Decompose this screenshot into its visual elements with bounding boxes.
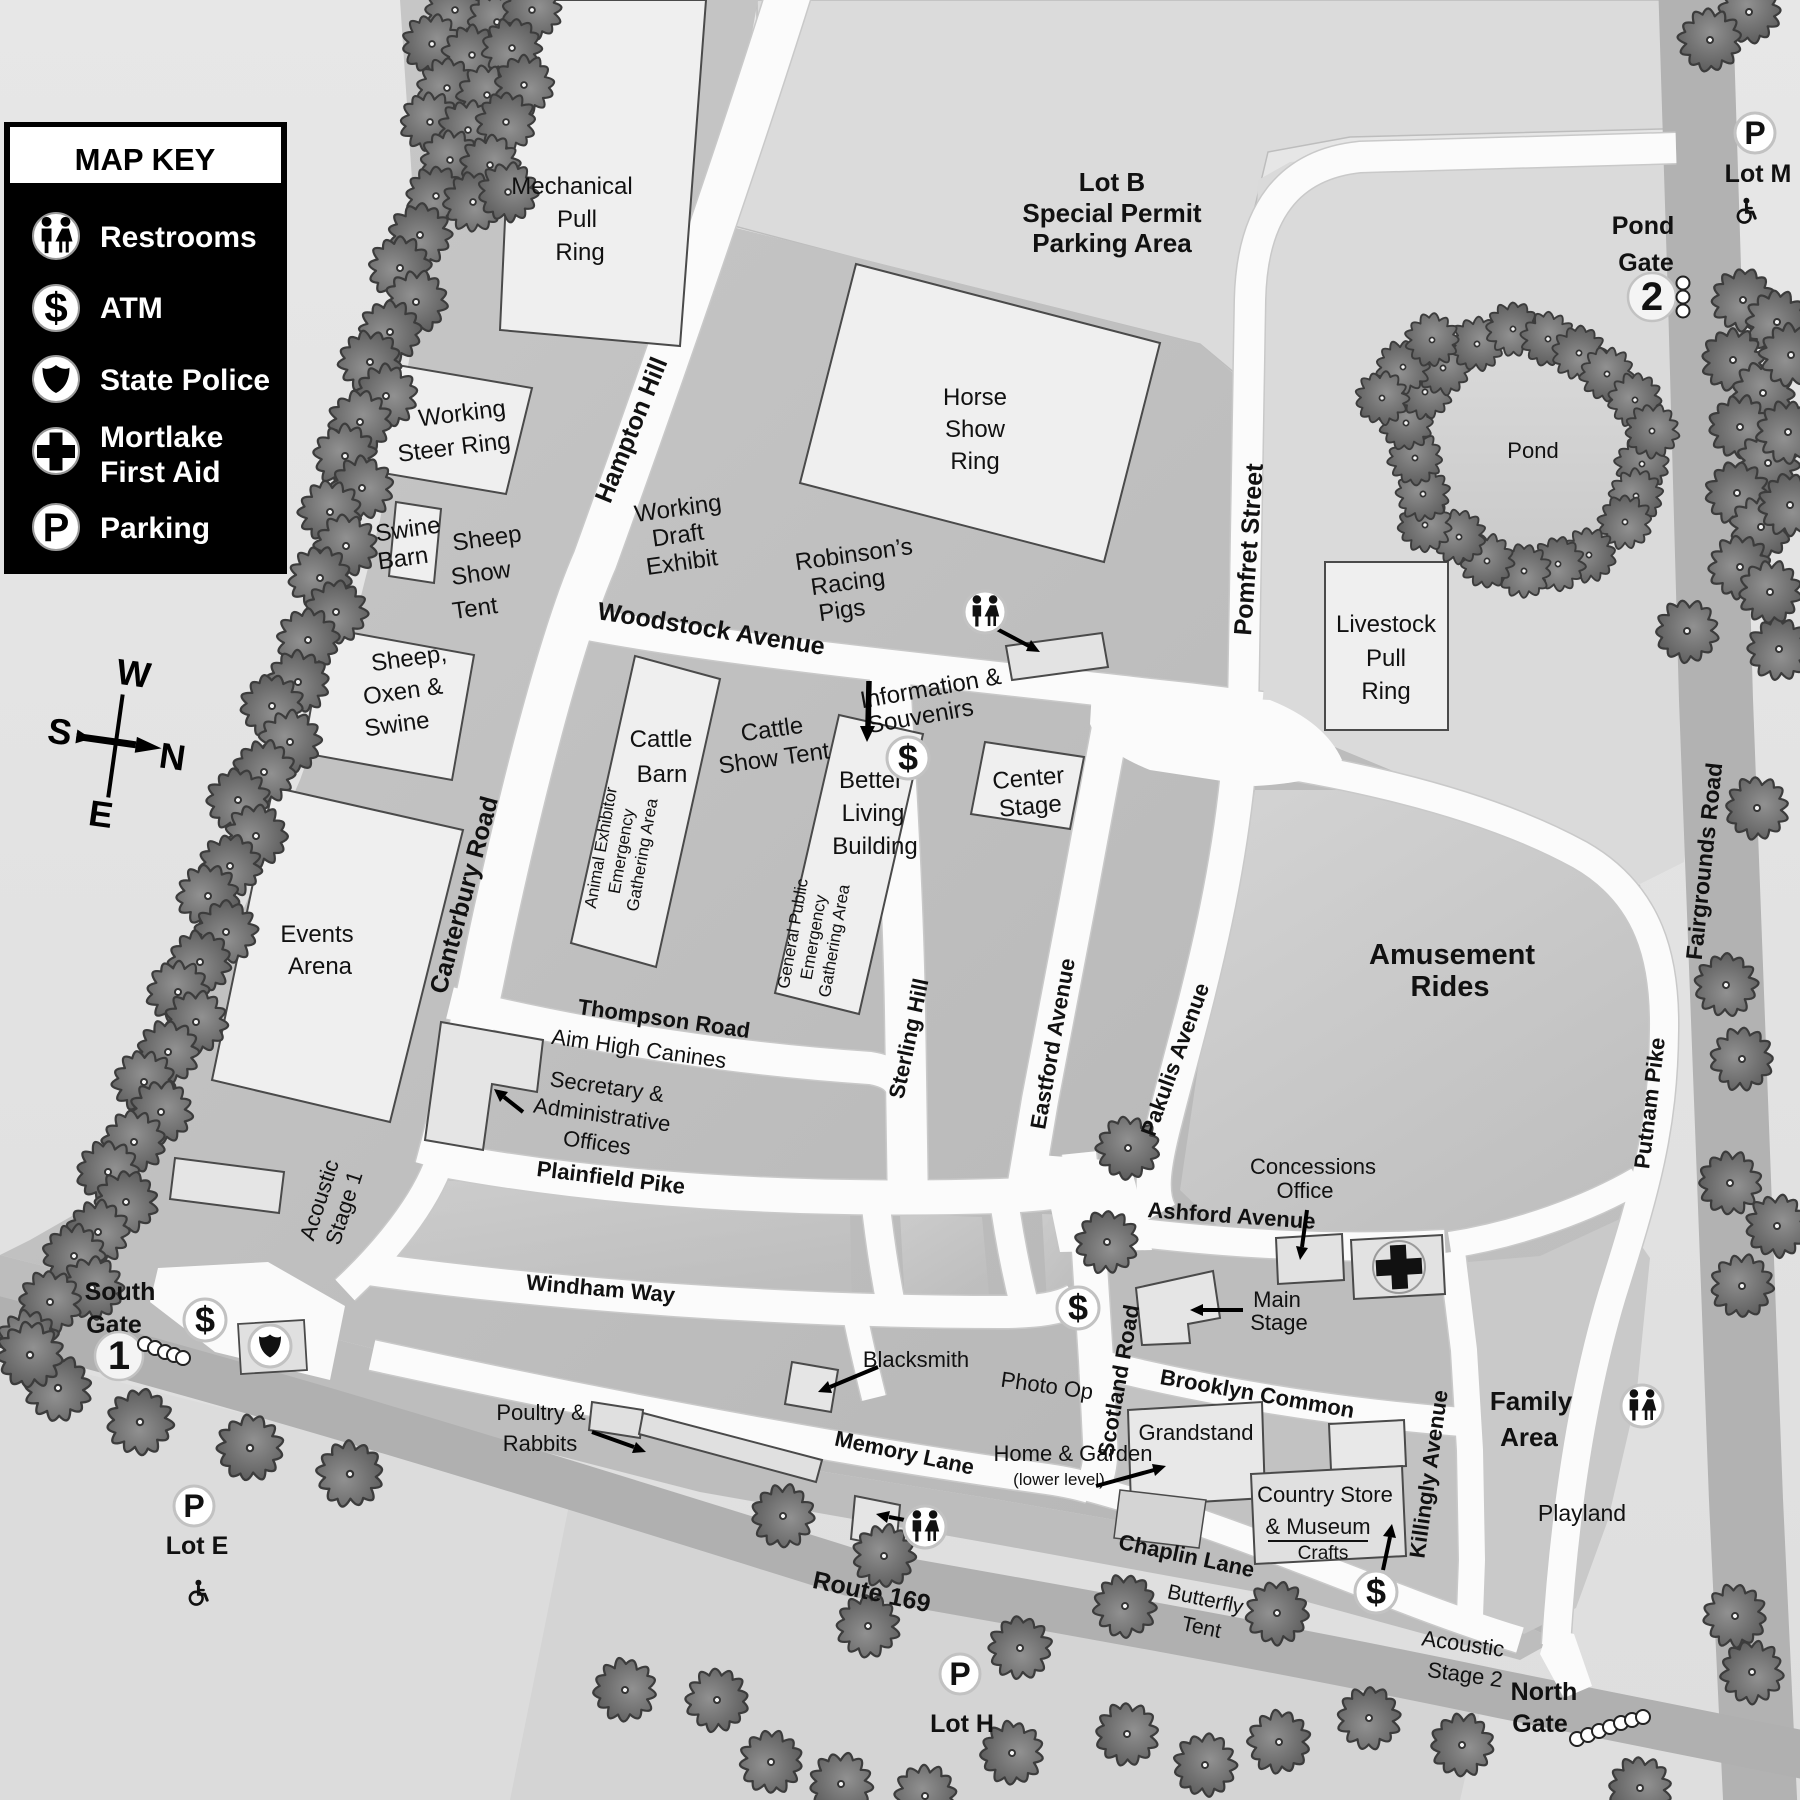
svg-text:2: 2 [1641, 275, 1663, 319]
svg-text:(lower level): (lower level) [1013, 1470, 1105, 1489]
svg-text:Mechanical: Mechanical [511, 173, 632, 200]
svg-text:Mortlake: Mortlake [100, 421, 223, 454]
svg-text:Poultry &: Poultry & [496, 1400, 586, 1425]
svg-text:P: P [1744, 115, 1765, 151]
svg-text:Crafts: Crafts [1298, 1543, 1349, 1564]
svg-text:$: $ [898, 737, 918, 778]
svg-text:Stage: Stage [998, 790, 1063, 822]
svg-text:W: W [114, 651, 153, 696]
svg-text:Ring: Ring [555, 239, 604, 266]
svg-text:Lot H: Lot H [930, 1710, 994, 1738]
svg-text:Ring: Ring [1361, 678, 1410, 705]
svg-text:Special Permit: Special Permit [1022, 198, 1202, 228]
svg-text:Playland: Playland [1538, 1500, 1626, 1526]
svg-text:Pull: Pull [1366, 645, 1406, 672]
svg-text:& Museum: & Museum [1265, 1514, 1370, 1539]
svg-text:MAP KEY: MAP KEY [75, 142, 216, 177]
svg-text:Amusement: Amusement [1369, 939, 1535, 971]
svg-text:Cattle: Cattle [630, 726, 693, 753]
svg-text:Parking Area: Parking Area [1032, 228, 1192, 258]
svg-text:$: $ [1366, 1571, 1386, 1612]
svg-text:South: South [85, 1278, 156, 1306]
svg-text:Lot E: Lot E [166, 1532, 229, 1560]
svg-text:Home & Garden: Home & Garden [994, 1441, 1153, 1466]
svg-text:$: $ [44, 284, 67, 331]
svg-text:Living: Living [842, 800, 905, 827]
svg-text:Lot B: Lot B [1079, 167, 1145, 197]
svg-text:Barn: Barn [637, 761, 688, 788]
svg-text:Pull: Pull [557, 206, 597, 233]
svg-text:Building: Building [832, 833, 917, 860]
svg-text:Country Store: Country Store [1257, 1482, 1393, 1507]
svg-text:Pond: Pond [1507, 438, 1558, 463]
svg-text:Stage: Stage [1250, 1310, 1308, 1335]
svg-text:Rides: Rides [1411, 971, 1490, 1003]
svg-text:Blacksmith: Blacksmith [863, 1347, 969, 1372]
svg-text:P: P [43, 506, 70, 550]
svg-text:Restrooms: Restrooms [100, 221, 257, 254]
svg-text:P: P [183, 1488, 204, 1524]
svg-text:Livestock: Livestock [1336, 611, 1437, 638]
svg-text:Ring: Ring [950, 448, 999, 475]
svg-text:Horse: Horse [943, 384, 1007, 411]
svg-text:$: $ [1068, 1287, 1088, 1328]
svg-text:First Aid: First Aid [100, 456, 221, 489]
svg-text:State Police: State Police [100, 364, 270, 397]
svg-text:Main: Main [1253, 1287, 1301, 1312]
svg-text:Events: Events [280, 921, 353, 948]
svg-text:Grandstand: Grandstand [1139, 1420, 1254, 1445]
svg-text:1: 1 [108, 1334, 130, 1378]
svg-text:Family: Family [1490, 1386, 1573, 1416]
svg-text:Concessions: Concessions [1250, 1154, 1376, 1179]
svg-text:Arena: Arena [288, 953, 353, 980]
svg-text:Rabbits: Rabbits [503, 1431, 578, 1456]
svg-text:$: $ [195, 1299, 215, 1340]
svg-text:North: North [1511, 1678, 1578, 1706]
svg-text:ATM: ATM [100, 292, 163, 325]
svg-text:Parking: Parking [100, 512, 210, 545]
svg-text:Pond: Pond [1612, 212, 1675, 240]
svg-text:Office: Office [1276, 1178, 1333, 1203]
svg-text:P: P [949, 1656, 970, 1692]
svg-text:Show: Show [945, 416, 1006, 443]
svg-text:Area: Area [1500, 1422, 1558, 1452]
svg-text:Lot M: Lot M [1725, 160, 1792, 188]
svg-text:Gate: Gate [1512, 1710, 1568, 1738]
